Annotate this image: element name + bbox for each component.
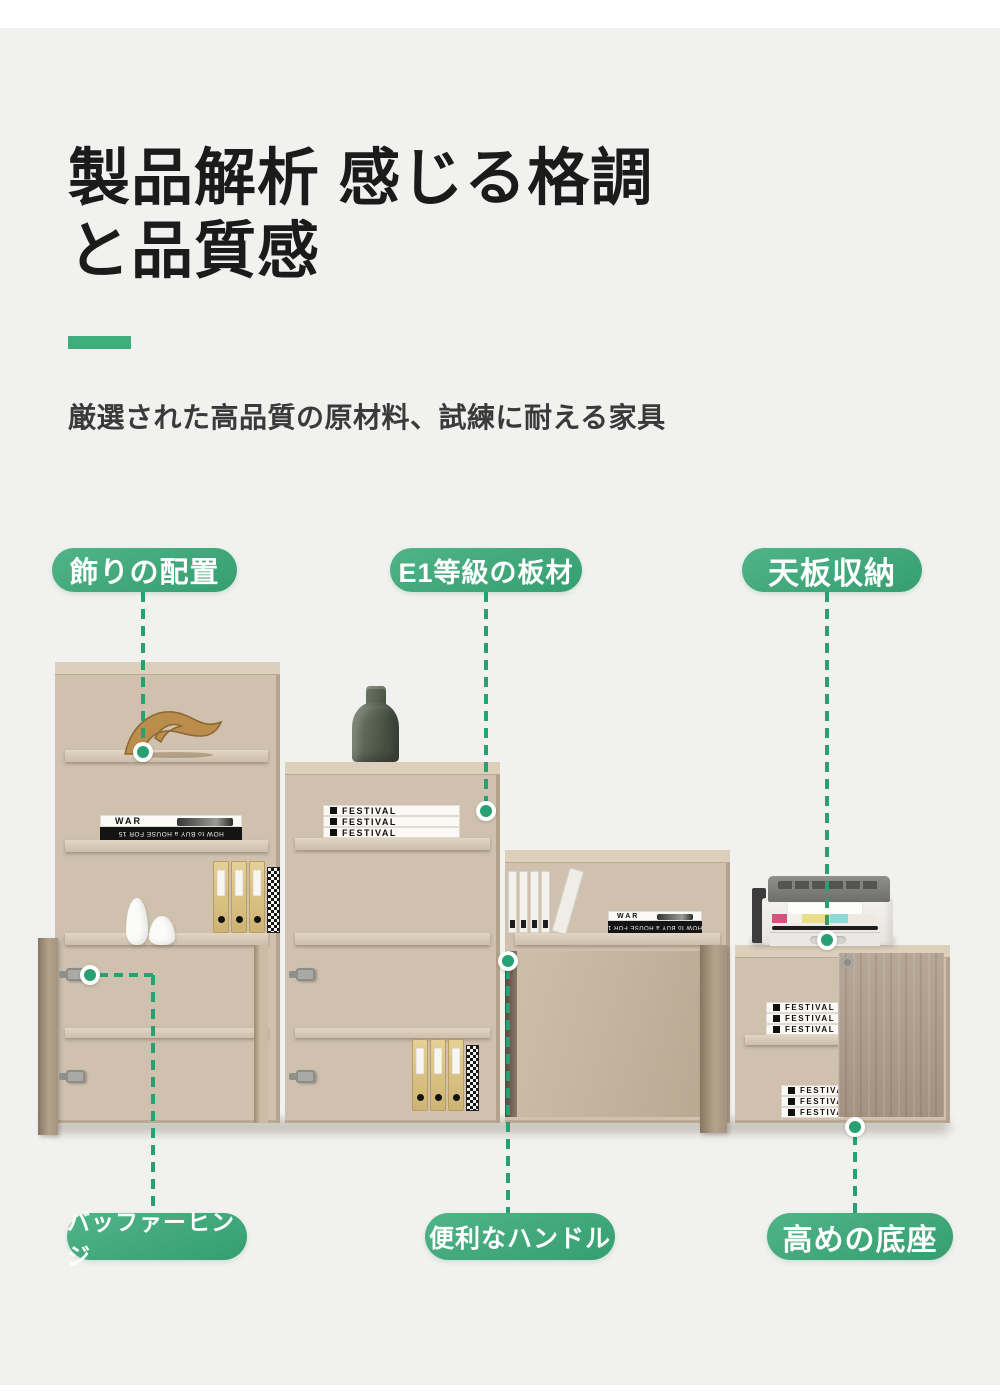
printer-top-unit — [768, 876, 890, 902]
white-binder — [519, 871, 528, 933]
product-detail-section: 製品解析 感じる格調と品質感 厳選された高品質の原材料、試練に耐える家具 — [0, 0, 1000, 1399]
hinge — [296, 1070, 315, 1083]
shelf-board — [65, 840, 268, 852]
book-title: FESTIVAL — [342, 806, 397, 816]
bookcase-left-top — [55, 662, 280, 674]
accent-bar — [68, 336, 131, 349]
white-binder — [508, 871, 517, 933]
callout-dot-board — [476, 801, 496, 821]
book-logo — [773, 1015, 780, 1022]
book-spine-festival: FESTIVAL — [766, 1013, 840, 1024]
shelf-board — [515, 933, 720, 945]
book-title: FESTIVAL — [800, 1097, 843, 1106]
leader-line — [484, 592, 488, 801]
shelf-board — [65, 1028, 268, 1038]
callout-dot-top-storage — [817, 930, 837, 950]
checkered-box — [466, 1045, 479, 1111]
book-logo — [330, 807, 337, 814]
book-spine-festival: FESTIVAL — [323, 805, 460, 816]
book-spine-house: HOW to BUY a HOUSE FOR 15 — [100, 827, 242, 840]
printer-color-papers — [772, 914, 876, 923]
bottom-margin — [0, 1385, 1000, 1399]
book-logo — [773, 1026, 780, 1033]
festival-book-stack: FESTIVAL FESTIVAL FESTIVAL — [323, 805, 460, 838]
leader-line — [853, 1135, 857, 1213]
hinge — [296, 968, 315, 981]
file-binder — [213, 861, 229, 933]
book-spine-war: WAR — [608, 911, 702, 921]
book-logo — [330, 818, 337, 825]
book-logo — [788, 1109, 795, 1116]
leader-line — [506, 969, 510, 1213]
book-spine-festival: FESTIVAL — [766, 1002, 840, 1013]
open-door-panel — [700, 945, 727, 1133]
book-title: FESTIVAL — [342, 817, 397, 827]
festival-book-stack: FESTIVAL FESTIVAL FESTIVAL — [766, 1002, 840, 1035]
callout-label-top-storage: 天板収納 — [742, 548, 922, 592]
file-binder — [412, 1039, 428, 1111]
book-spine-festival: FESTIVAL — [781, 1107, 843, 1118]
book-logo — [330, 829, 337, 836]
leader-line — [825, 592, 829, 930]
book-stack-war: WAR HOW to BUY a HOUSE FOR 15 — [100, 815, 242, 840]
file-binder — [448, 1039, 464, 1111]
leader-line — [99, 973, 153, 977]
callout-label-decoration: 飾りの配置 — [52, 548, 237, 592]
section-subtitle: 厳選された高品質の原材料、試練に耐える家具 — [68, 396, 928, 436]
book-spine-festival: FESTIVAL — [781, 1085, 843, 1096]
door-edge — [254, 945, 268, 1123]
book-title: WAR — [115, 816, 142, 826]
book-logo — [773, 1004, 780, 1011]
book-spine-festival: FESTIVAL — [323, 827, 460, 838]
festival-book-stack: FESTIVAL FESTIVAL FESTIVAL — [781, 1085, 843, 1118]
shelf-board — [295, 838, 490, 850]
book-spine-house: HOW to BUY a HOUSE FOR 15 — [608, 921, 702, 933]
book-title: HOW to BUY a HOUSE FOR 15 — [100, 830, 242, 837]
book-title: WAR — [617, 913, 639, 920]
leader-line — [141, 592, 145, 742]
book-title: FESTIVAL — [342, 828, 397, 838]
bookcase-low-top — [505, 850, 730, 862]
file-binder — [249, 861, 265, 933]
sliding-door — [838, 953, 944, 1117]
book-title: FESTIVAL — [800, 1086, 843, 1095]
open-door-panel — [38, 938, 58, 1135]
callout-label-raised-base: 高めの底座 — [767, 1213, 953, 1260]
bookcase-middle-top — [285, 762, 500, 774]
book-title: HOW to BUY a HOUSE FOR 15 — [608, 924, 702, 930]
file-binder — [231, 861, 247, 933]
book-title: FESTIVAL — [785, 1025, 835, 1034]
book-logo — [788, 1087, 795, 1094]
book-title: FESTIVAL — [785, 1003, 835, 1012]
book-artwork — [657, 914, 693, 920]
book-logo — [788, 1098, 795, 1105]
door-lock — [841, 956, 854, 969]
book-artwork — [177, 818, 233, 826]
book-spine-festival: FESTIVAL — [781, 1096, 843, 1107]
checkered-box — [267, 867, 280, 933]
book-spine-festival: FESTIVAL — [323, 816, 460, 827]
closed-door — [517, 951, 700, 1117]
section-title: 製品解析 感じる格調と品質感 — [68, 142, 668, 288]
callout-dot-decoration — [133, 742, 153, 762]
book-spine-festival: FESTIVAL — [766, 1024, 840, 1035]
book-title: FESTIVAL — [800, 1108, 843, 1117]
file-binder — [430, 1039, 446, 1111]
shelf-board — [295, 933, 490, 945]
shelf-board — [295, 1028, 490, 1038]
book-title: FESTIVAL — [785, 1014, 835, 1023]
callout-dot-hinge — [80, 965, 100, 985]
shelf-board — [745, 1035, 845, 1045]
callout-label-handy-handle: 便利なハンドル — [425, 1213, 615, 1260]
callout-label-buffer-hinge: バッファーヒンジ — [67, 1213, 247, 1260]
callout-dot-base — [845, 1117, 865, 1137]
white-binder — [541, 871, 550, 933]
book-stack-war-small: WAR HOW to BUY a HOUSE FOR 15 — [608, 911, 702, 933]
callout-dot-handle — [498, 951, 518, 971]
hinge — [66, 1070, 85, 1083]
leader-line — [151, 975, 155, 1213]
white-binder — [530, 871, 539, 933]
callout-label-e1-board: E1等級の板材 — [390, 548, 582, 592]
glass-vase — [352, 702, 399, 762]
book-spine-war: WAR — [100, 815, 242, 827]
